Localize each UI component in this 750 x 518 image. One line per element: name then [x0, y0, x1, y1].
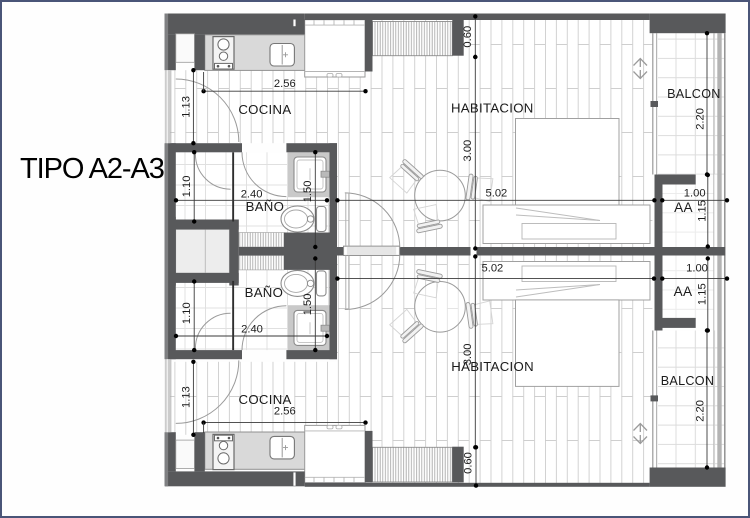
- svg-text:AA: AA: [674, 200, 693, 215]
- svg-text:0.60: 0.60: [462, 26, 474, 48]
- svg-text:1.10: 1.10: [181, 176, 193, 198]
- svg-text:5.02: 5.02: [482, 263, 504, 275]
- svg-text:2.56: 2.56: [274, 78, 296, 90]
- svg-text:1.50: 1.50: [302, 294, 314, 316]
- svg-text:1.13: 1.13: [180, 96, 192, 118]
- svg-text:1.15: 1.15: [697, 200, 709, 222]
- svg-text:BALCON: BALCON: [661, 374, 715, 388]
- svg-text:BALCON: BALCON: [667, 87, 721, 101]
- svg-text:2.20: 2.20: [694, 400, 706, 422]
- svg-text:HABITACION: HABITACION: [451, 101, 534, 116]
- svg-text:COCINA: COCINA: [238, 102, 291, 117]
- svg-text:2.56: 2.56: [274, 406, 296, 418]
- svg-text:BAÑO: BAÑO: [246, 199, 285, 214]
- svg-text:COCINA: COCINA: [239, 392, 292, 407]
- svg-text:HABITACION: HABITACION: [451, 359, 534, 374]
- svg-text:AA: AA: [674, 284, 693, 299]
- svg-text:1.13: 1.13: [180, 386, 192, 408]
- svg-text:0.60: 0.60: [463, 452, 475, 474]
- svg-text:1.00: 1.00: [686, 263, 708, 275]
- svg-text:1.10: 1.10: [181, 302, 193, 324]
- svg-text:3.00: 3.00: [462, 140, 474, 162]
- svg-text:2.40: 2.40: [241, 324, 263, 336]
- svg-text:BAÑO: BAÑO: [245, 285, 284, 300]
- svg-text:1.00: 1.00: [684, 187, 706, 199]
- svg-text:5.02: 5.02: [486, 188, 508, 200]
- svg-text:1.50: 1.50: [302, 181, 314, 203]
- svg-text:2.20: 2.20: [694, 108, 706, 130]
- svg-text:1.15: 1.15: [697, 283, 709, 305]
